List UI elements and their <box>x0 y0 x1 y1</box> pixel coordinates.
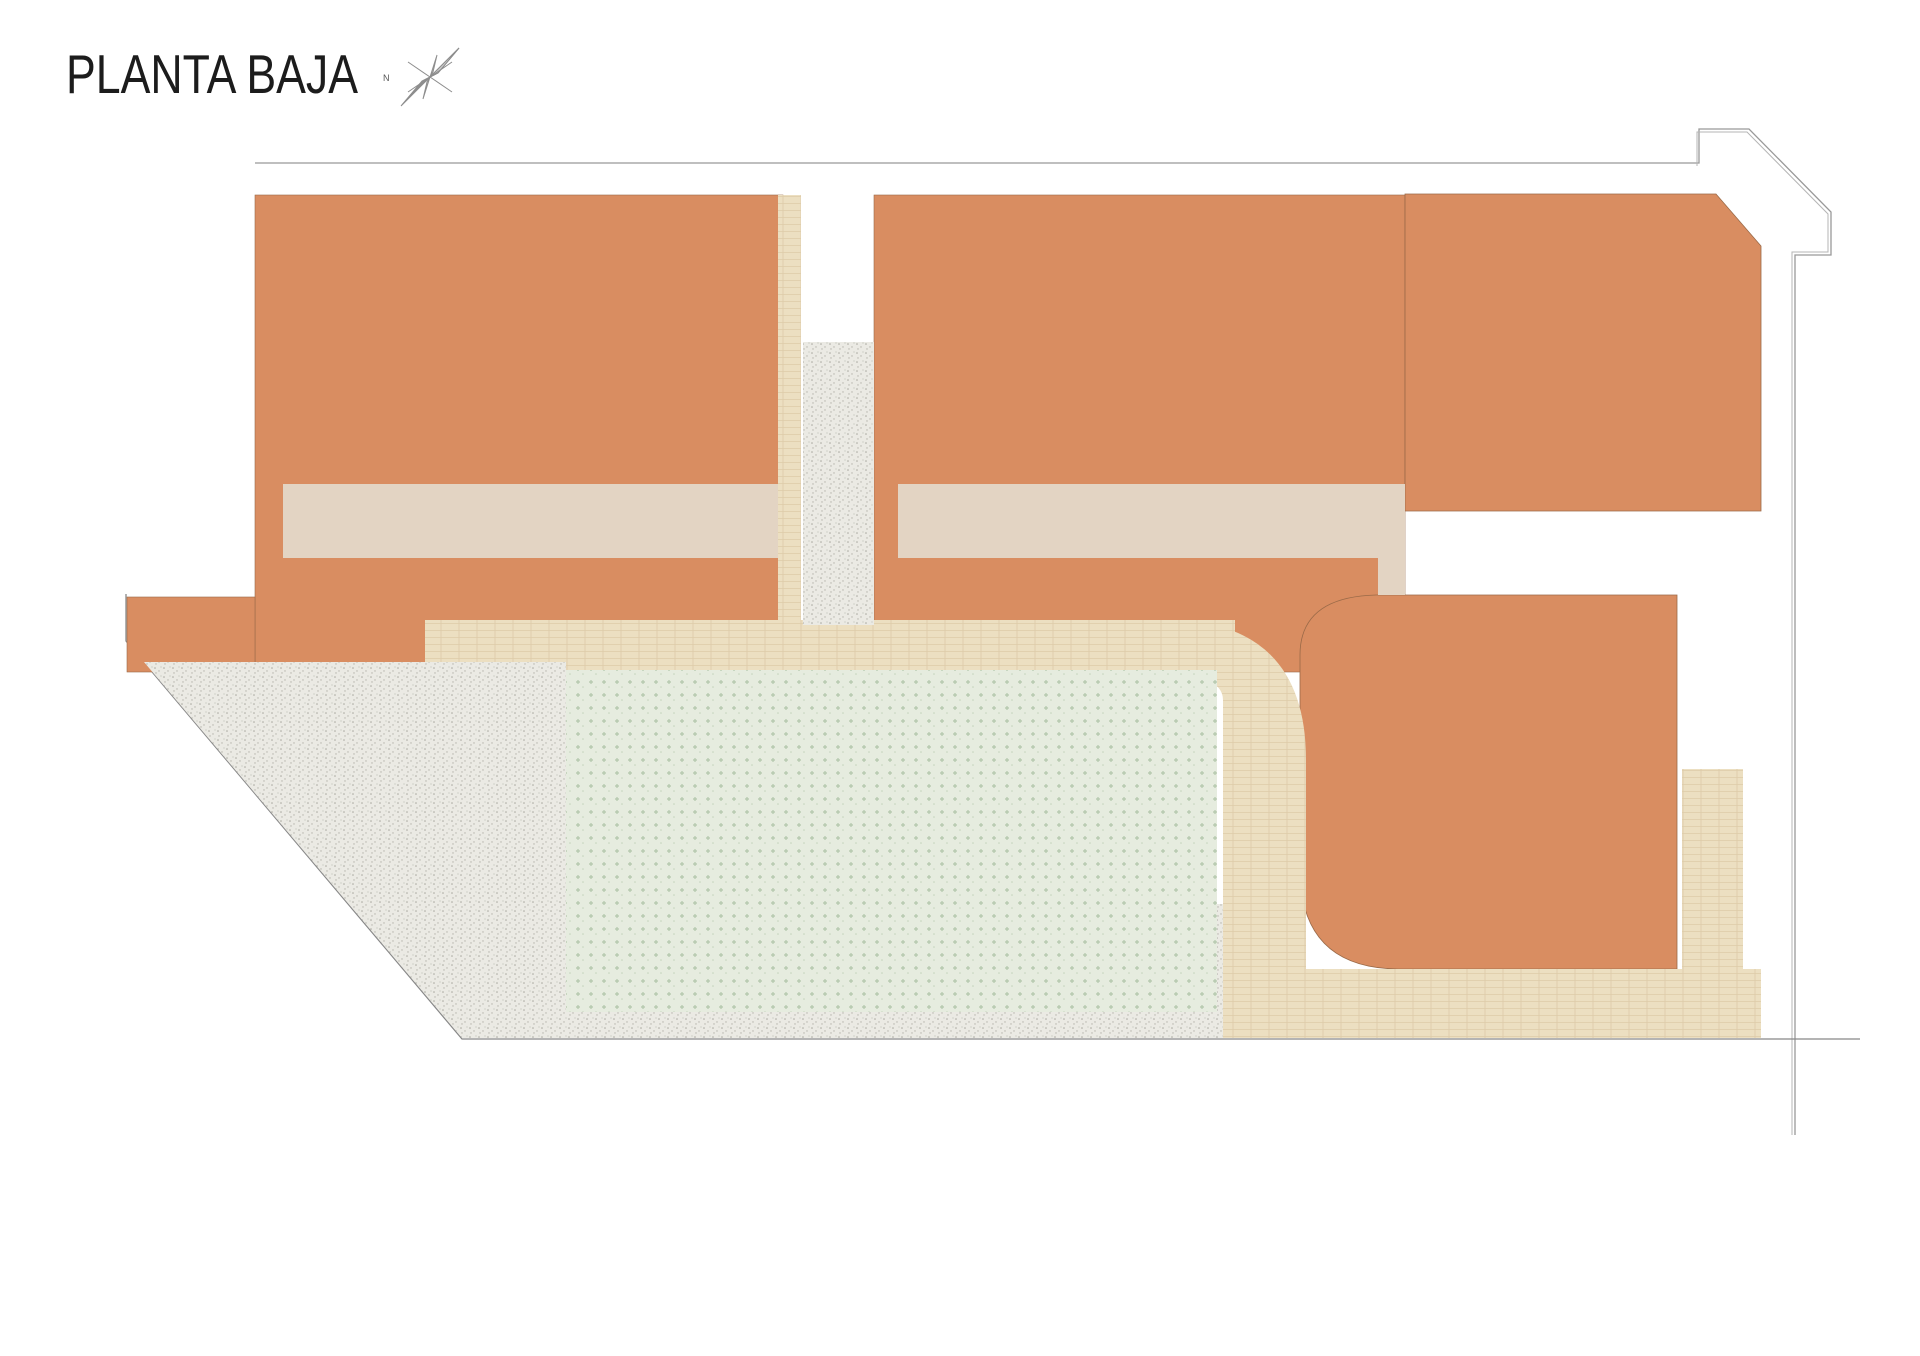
svg-text:PLANTA BAJA: PLANTA BAJA <box>66 43 358 105</box>
svg-text:N: N <box>383 73 390 83</box>
